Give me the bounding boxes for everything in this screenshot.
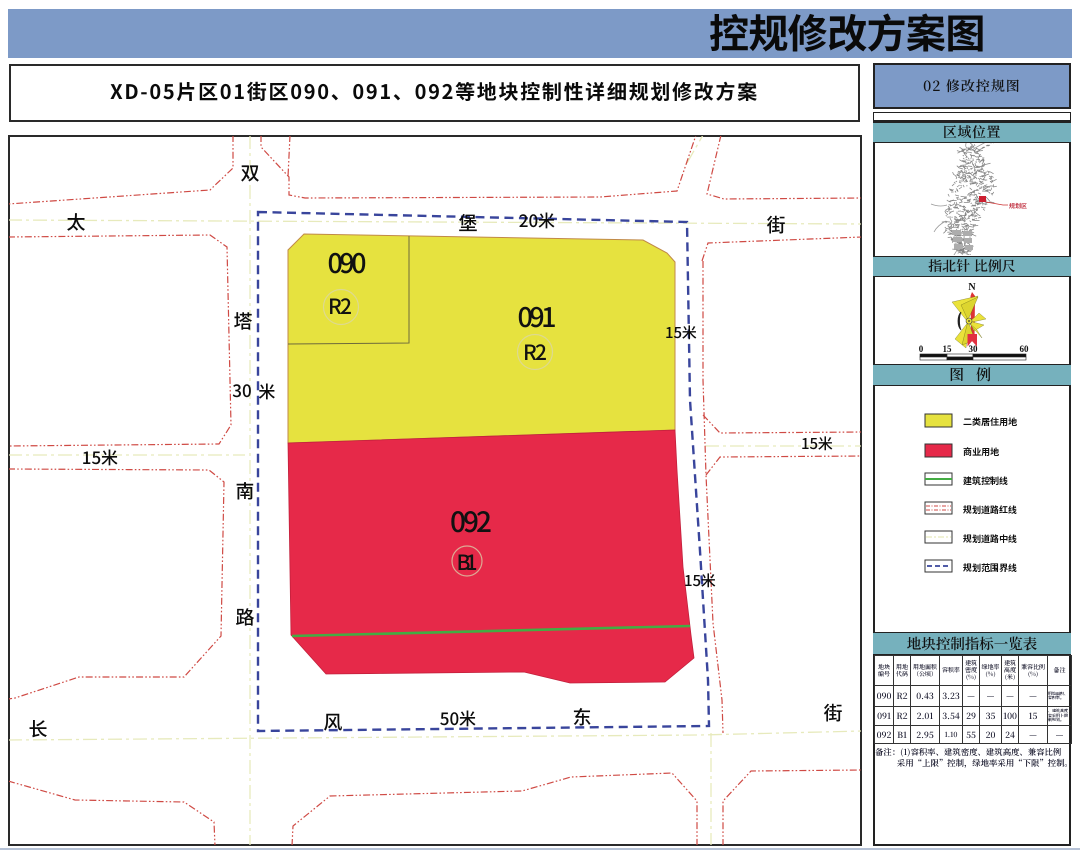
svg-text:建筑控制线: 建筑控制线: [963, 474, 1009, 487]
svg-text:15米: 15米: [801, 433, 833, 454]
svg-text:双: 双: [240, 159, 259, 186]
svg-text:规划道路红线: 规划道路红线: [963, 503, 1018, 516]
svg-text:规划范围界线: 规划范围界线: [963, 561, 1018, 574]
svg-text:商业用地: 商业用地: [963, 445, 999, 458]
svg-text:长: 长: [28, 715, 47, 742]
svg-text:15: 15: [943, 344, 953, 354]
svg-text:092: 092: [450, 501, 492, 541]
svg-text:N: N: [968, 282, 976, 293]
svg-text:规划区: 规划区: [1009, 201, 1027, 210]
svg-text:塔: 塔: [233, 307, 252, 334]
svg-text:B1: B1: [457, 547, 478, 577]
svg-text:R2: R2: [523, 337, 547, 367]
svg-text:规划道路中线: 规划道路中线: [963, 532, 1018, 545]
svg-text:街: 街: [766, 211, 785, 238]
svg-text:风: 风: [323, 708, 342, 735]
svg-text:15米: 15米: [684, 570, 716, 591]
svg-text:太: 太: [66, 208, 85, 235]
svg-text:50米: 50米: [440, 705, 476, 730]
svg-text:30: 30: [969, 344, 979, 354]
svg-text:091: 091: [518, 296, 557, 335]
svg-text:090: 090: [328, 242, 367, 281]
svg-text:20米: 20米: [519, 207, 555, 232]
svg-text:30: 30: [232, 377, 251, 402]
svg-text:15米: 15米: [665, 322, 697, 343]
svg-text:东: 东: [572, 703, 591, 730]
svg-text:路: 路: [235, 603, 254, 630]
svg-text:南: 南: [235, 477, 254, 504]
svg-text:0: 0: [919, 344, 924, 354]
svg-text:R2: R2: [328, 291, 352, 321]
svg-text:二类居住用地: 二类居住用地: [963, 415, 1017, 428]
svg-text:街: 街: [823, 699, 842, 726]
svg-text:60: 60: [1020, 344, 1030, 354]
svg-text:米: 米: [259, 378, 276, 403]
svg-text:15米: 15米: [82, 444, 118, 469]
svg-text:堡: 堡: [458, 209, 477, 236]
